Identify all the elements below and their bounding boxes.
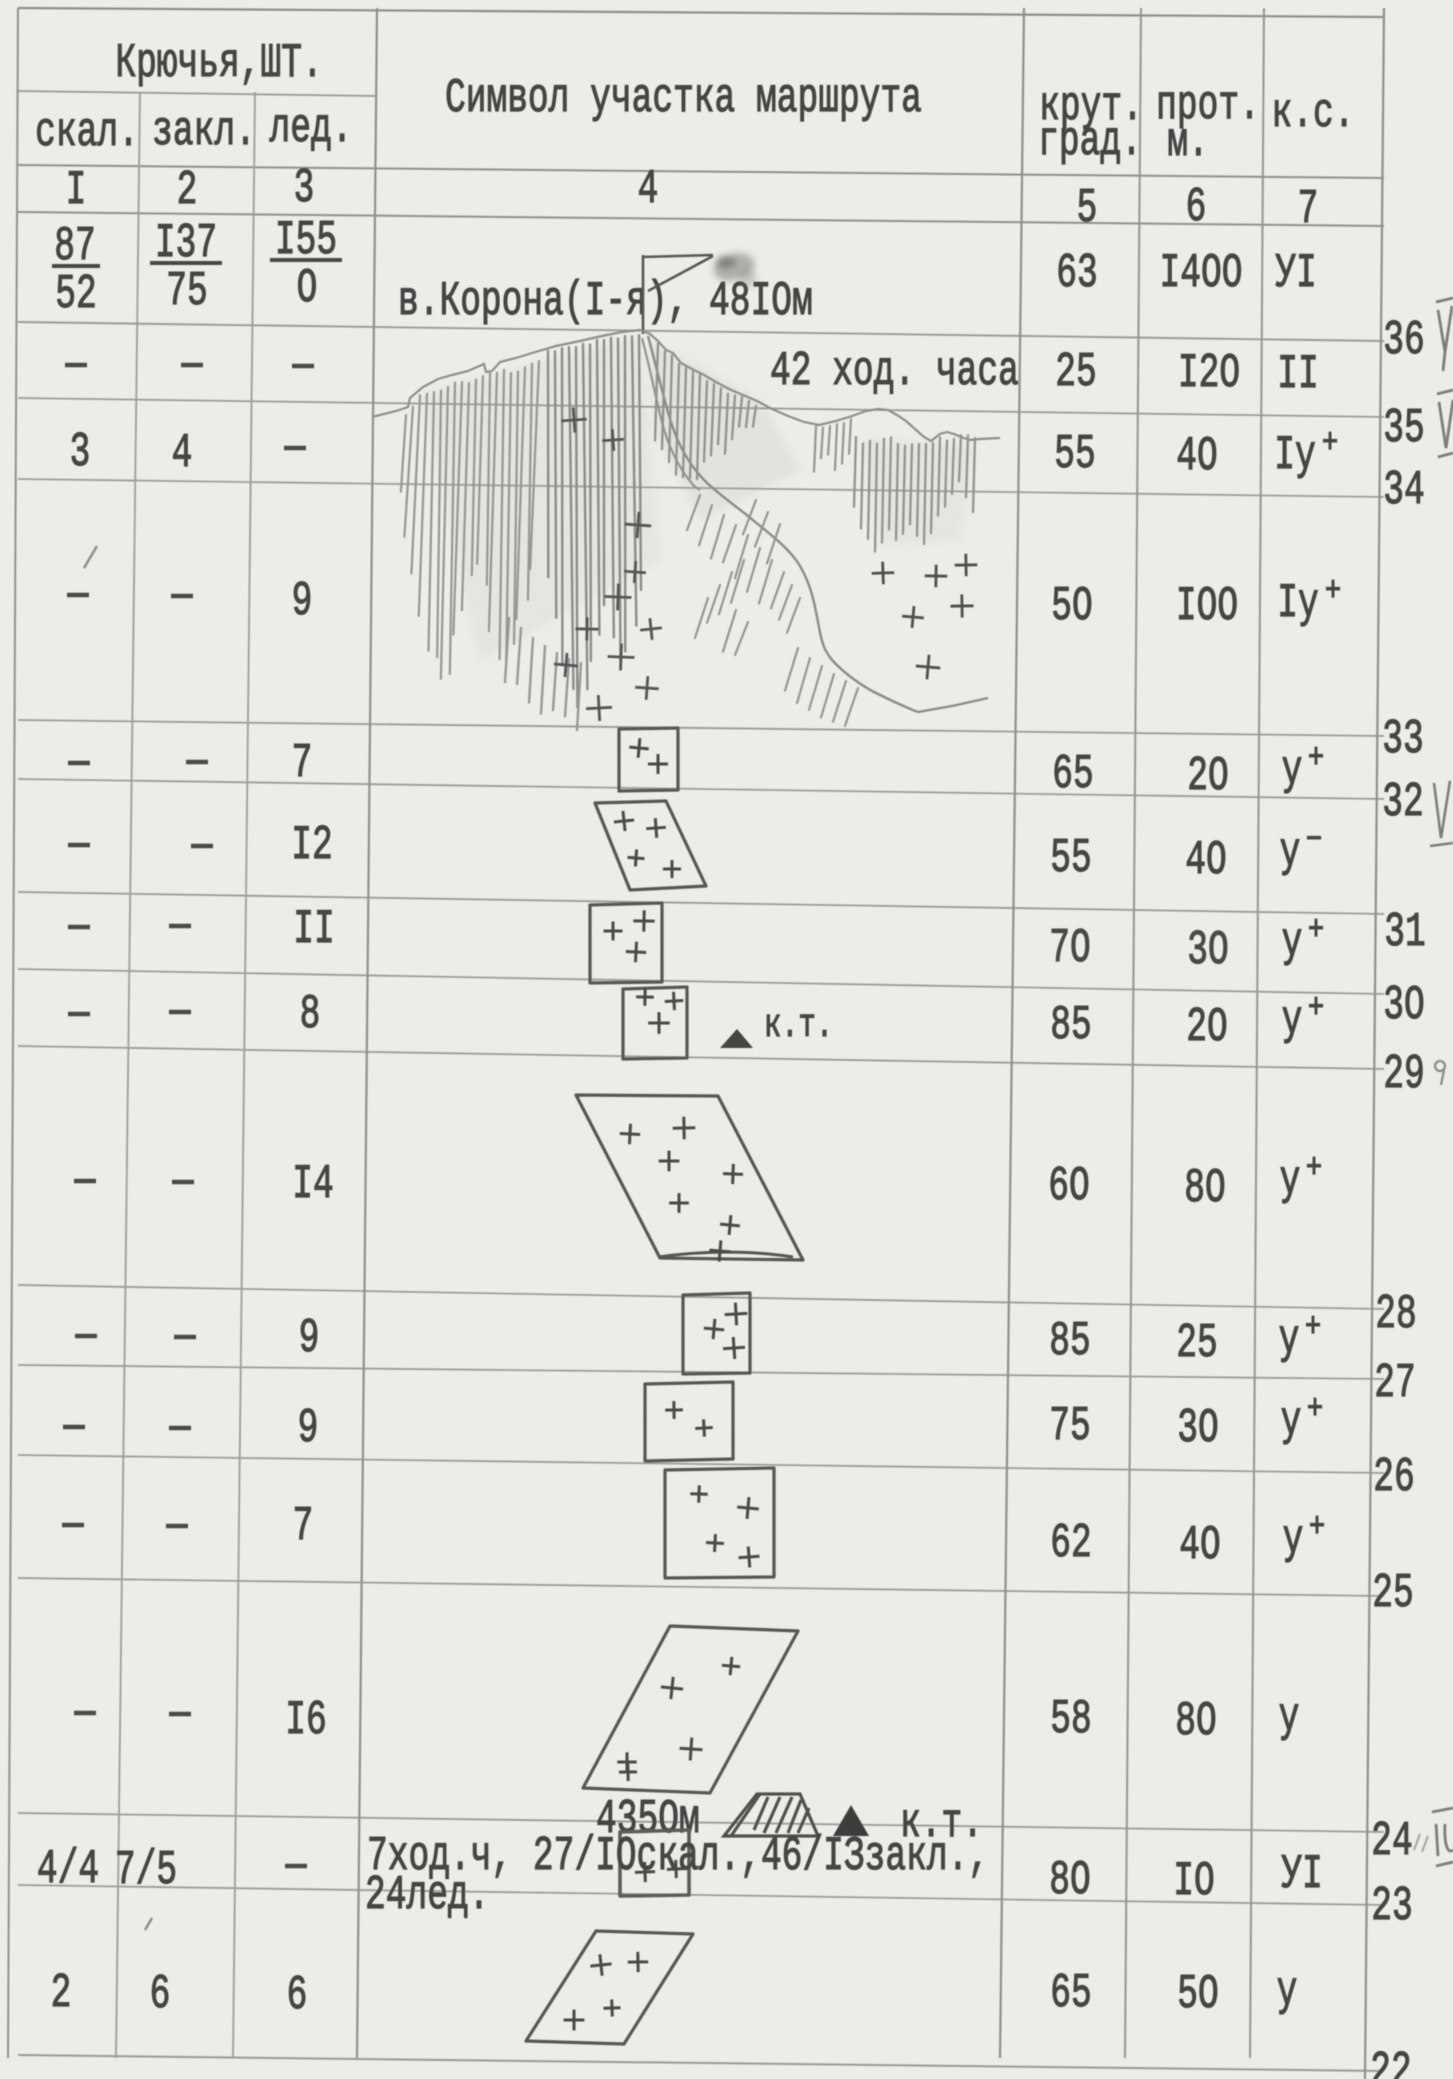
- svg-text:25: 25: [1055, 345, 1096, 400]
- svg-text:−: −: [1306, 821, 1322, 860]
- svg-text:32: 32: [1382, 775, 1423, 830]
- svg-text:град.: град.: [1038, 114, 1142, 169]
- svg-text:4/4: 4/4: [37, 1842, 99, 1897]
- svg-text:9: 9: [298, 1401, 319, 1456]
- svg-text:IОО: IОО: [1176, 579, 1238, 634]
- svg-text:7О: 7О: [1049, 921, 1090, 976]
- svg-text:8О: 8О: [1049, 1853, 1090, 1908]
- svg-text:85: 85: [1050, 998, 1091, 1053]
- svg-text:+: +: [1309, 1508, 1325, 1547]
- svg-text:2: 2: [51, 1966, 72, 2021]
- svg-text:28: 28: [1375, 1287, 1416, 1342]
- svg-text:5О: 5О: [1177, 1967, 1218, 2022]
- svg-text:24: 24: [1371, 1814, 1412, 1869]
- svg-text:м.: м.: [1167, 115, 1208, 170]
- svg-text:6: 6: [150, 1967, 171, 2022]
- svg-text:+: +: [1325, 572, 1341, 611]
- svg-text:лед.: лед.: [270, 101, 353, 156]
- svg-text:23: 23: [1371, 1879, 1412, 1934]
- svg-text:I4: I4: [292, 1157, 333, 1212]
- svg-text:у: у: [1282, 915, 1303, 970]
- svg-text:у: у: [1282, 743, 1303, 798]
- svg-text:3О: 3О: [1177, 1401, 1218, 1456]
- svg-text:24лед.: 24лед.: [365, 1868, 489, 1923]
- svg-text:у: у: [1279, 1312, 1300, 1367]
- svg-text:I6: I6: [285, 1693, 326, 1748]
- svg-text:42 ход. часа: 42 ход. часа: [770, 344, 1019, 399]
- svg-text:УI: УI: [1275, 246, 1316, 301]
- svg-text:9: 9: [292, 574, 313, 629]
- svg-text:4О: 4О: [1176, 429, 1217, 484]
- svg-text:31: 31: [1384, 905, 1425, 960]
- svg-text:у: у: [1280, 1153, 1301, 1208]
- svg-text:О: О: [297, 261, 318, 316]
- svg-text:+: +: [1306, 1149, 1322, 1188]
- svg-text:29: 29: [1383, 1047, 1424, 1102]
- svg-text:у: у: [1282, 993, 1303, 1048]
- svg-text:6: 6: [1186, 180, 1207, 235]
- svg-text:34: 34: [1383, 463, 1424, 518]
- svg-text:5О: 5О: [1051, 579, 1092, 634]
- svg-text:3О: 3О: [1187, 923, 1228, 978]
- svg-text:8О: 8О: [1184, 1161, 1225, 1216]
- svg-text:7: 7: [293, 1499, 314, 1554]
- svg-text:I: I: [66, 163, 87, 218]
- svg-text:к.с.: к.с.: [1272, 86, 1355, 141]
- svg-text:I2О: I2О: [1178, 346, 1240, 401]
- svg-text:IO: IO: [1173, 1854, 1214, 1909]
- svg-text:4О: 4О: [1185, 833, 1226, 888]
- svg-text:26: 26: [1373, 1450, 1414, 1505]
- svg-text:4: 4: [638, 162, 659, 217]
- svg-text:I2: I2: [291, 818, 332, 873]
- svg-text:Iу: Iу: [1277, 576, 1318, 631]
- svg-text:к.т.: к.т.: [764, 1004, 833, 1049]
- svg-text:3: 3: [294, 161, 315, 216]
- svg-text:6О: 6О: [1048, 1159, 1089, 1214]
- svg-text:63: 63: [1056, 246, 1097, 301]
- svg-text:27: 27: [1374, 1356, 1415, 1411]
- svg-text:3: 3: [70, 425, 91, 480]
- svg-text:7: 7: [1298, 182, 1319, 237]
- svg-text:3О: 3О: [1383, 978, 1424, 1033]
- svg-text:+: +: [1305, 1308, 1321, 1347]
- svg-text:65: 65: [1050, 1966, 1091, 2021]
- svg-text:75: 75: [166, 264, 207, 319]
- svg-text:33: 33: [1382, 712, 1423, 767]
- svg-text:Символ участка маршрута: Символ участка маршрута: [445, 71, 922, 126]
- svg-text:2О: 2О: [1187, 749, 1228, 804]
- svg-text:7/5: 7/5: [115, 1843, 177, 1898]
- svg-text:52: 52: [55, 267, 96, 322]
- svg-text:4: 4: [172, 426, 193, 481]
- svg-text:22: 22: [1370, 2044, 1411, 2079]
- svg-text:85: 85: [1049, 1314, 1090, 1369]
- svg-text:у: у: [1283, 1512, 1304, 1567]
- svg-text:8: 8: [300, 987, 321, 1042]
- svg-text:закл.: закл.: [152, 104, 256, 159]
- svg-text:35: 35: [1383, 401, 1424, 456]
- svg-text:58: 58: [1050, 1692, 1091, 1747]
- svg-text:Iу: Iу: [1274, 428, 1315, 483]
- svg-text:II: II: [293, 902, 334, 957]
- svg-text:+: +: [1322, 424, 1338, 463]
- svg-text:25: 25: [1372, 1566, 1413, 1621]
- svg-text:скал.: скал.: [35, 105, 139, 160]
- svg-text:Крючья,ШТ.: Крючья,ШТ.: [115, 36, 322, 91]
- svg-text:55: 55: [1050, 831, 1091, 886]
- svg-text:+: +: [1307, 1390, 1323, 1429]
- svg-text:75: 75: [1049, 1399, 1090, 1454]
- svg-text:+: +: [1308, 739, 1324, 778]
- svg-text:II: II: [1277, 347, 1318, 402]
- svg-text:+: +: [1308, 989, 1324, 1028]
- svg-text:55: 55: [1054, 427, 1095, 482]
- svg-text:5: 5: [1077, 181, 1098, 236]
- svg-text:7: 7: [292, 736, 313, 791]
- svg-text:у: у: [1277, 1964, 1298, 2019]
- svg-text:36: 36: [1383, 313, 1424, 368]
- svg-text:у: у: [1281, 1394, 1302, 1449]
- svg-text:УI: УI: [1281, 1847, 1322, 1902]
- svg-text:2О: 2О: [1186, 1000, 1227, 1055]
- svg-text:8О: 8О: [1175, 1694, 1216, 1749]
- svg-text:25: 25: [1176, 1316, 1217, 1371]
- svg-text:I4ОО: I4ОО: [1160, 246, 1243, 301]
- svg-text:4О: 4О: [1179, 1518, 1220, 1573]
- svg-text:+: +: [1308, 911, 1324, 950]
- svg-text:9: 9: [299, 1311, 320, 1366]
- svg-text:65: 65: [1052, 747, 1093, 802]
- svg-text:62: 62: [1050, 1516, 1091, 1571]
- svg-text:у: у: [1280, 825, 1301, 880]
- svg-text:у: у: [1279, 1690, 1300, 1745]
- svg-text:2: 2: [177, 163, 198, 218]
- svg-text:6: 6: [287, 1968, 308, 2023]
